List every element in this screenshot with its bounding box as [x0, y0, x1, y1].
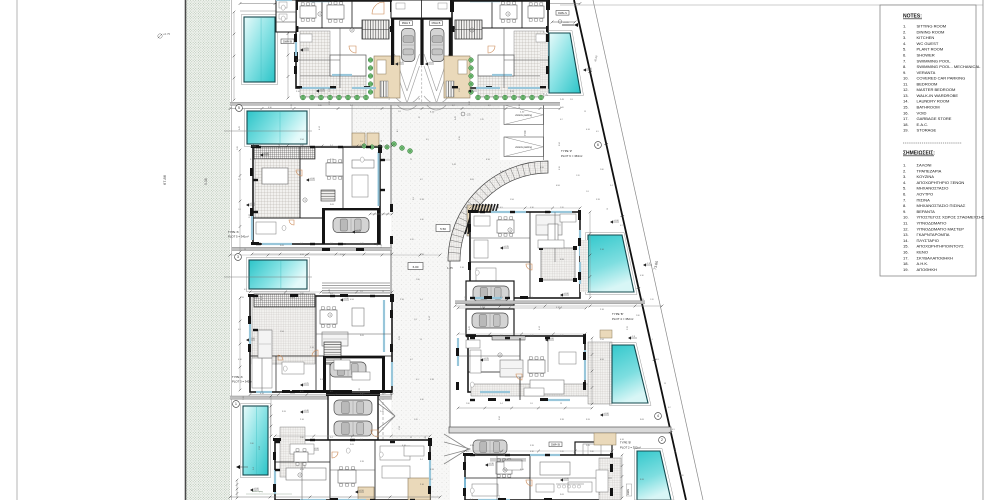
svg-text:3.4: 3.4 — [610, 185, 613, 187]
svg-text:0.9: 0.9 — [500, 451, 503, 453]
svg-text:4.2: 4.2 — [397, 129, 399, 132]
svg-text:1.20: 1.20 — [680, 475, 684, 477]
svg-text:0.30: 0.30 — [530, 207, 534, 209]
svg-text:0.30: 0.30 — [559, 166, 561, 170]
svg-text:DWH B: DWH B — [283, 39, 292, 43]
svg-text:15: 15 — [560, 403, 562, 405]
svg-text:1.20: 1.20 — [414, 419, 418, 421]
svg-text:3.: 3. — [903, 174, 906, 179]
svg-text:0.30: 0.30 — [640, 275, 644, 277]
svg-text:15.: 15. — [903, 105, 909, 110]
svg-text:TYPE 'A': TYPE 'A' — [232, 375, 243, 379]
svg-text:4.2: 4.2 — [466, 207, 469, 209]
svg-text:9.: 9. — [903, 70, 906, 75]
svg-text:ΑΠΟΧΩΡΗΤΗΡΙΟ/ΝΤΟΥΣ: ΑΠΟΧΩΡΗΤΗΡΙΟ/ΝΤΟΥΣ — [917, 244, 965, 249]
svg-text:PLOT 4 = 352m²: PLOT 4 = 352m² — [612, 317, 633, 321]
svg-text:15: 15 — [244, 249, 246, 251]
svg-text:3.4: 3.4 — [253, 467, 255, 470]
svg-text:+0.40: +0.40 — [263, 153, 269, 155]
svg-text:+0.05: +0.05 — [563, 22, 569, 24]
svg-text:ΠΛΥΣΤΑΡΙΟ: ΠΛΥΣΤΑΡΙΟ — [917, 238, 939, 243]
svg-text:2.80: 2.80 — [300, 437, 304, 439]
svg-text:TYPE 'A': TYPE 'A' — [228, 230, 239, 234]
svg-text:12.: 12. — [903, 226, 909, 231]
svg-text:0.30: 0.30 — [360, 243, 364, 245]
svg-text:0.9: 0.9 — [488, 105, 491, 107]
svg-text:WALK-IN WARDROBE: WALK-IN WARDROBE — [917, 93, 959, 98]
svg-text:2.80: 2.80 — [318, 105, 322, 107]
svg-text:ΣΚΥΒΑΛΑΠΟΘΗΚΗ: ΣΚΥΒΑΛΑΠΟΘΗΚΗ — [917, 255, 954, 260]
svg-text:TYPE 'B': TYPE 'B' — [620, 441, 631, 445]
svg-text:0.9: 0.9 — [629, 247, 631, 250]
svg-text:0.9: 0.9 — [330, 243, 333, 245]
svg-text:GARBAGE STORE: GARBAGE STORE — [917, 116, 952, 121]
svg-text:ΒΕΡΑΝΤΑ: ΒΕΡΑΝΤΑ — [917, 209, 936, 214]
svg-text:18.: 18. — [903, 261, 909, 266]
svg-text:1.20: 1.20 — [576, 175, 580, 177]
svg-text:KITCHEN: KITCHEN — [917, 35, 935, 40]
svg-text:0.30: 0.30 — [519, 104, 521, 108]
svg-text:4.2: 4.2 — [244, 289, 247, 291]
svg-text:VERANTA: VERANTA — [917, 70, 936, 75]
svg-text:4.2: 4.2 — [560, 119, 563, 121]
svg-text:13.: 13. — [903, 93, 909, 98]
svg-text:6.: 6. — [903, 192, 906, 197]
svg-text:8.: 8. — [903, 64, 906, 69]
svg-text:ΜΗΧΑΝΟΣΤΑΣΙΟ: ΜΗΧΑΝΟΣΤΑΣΙΟ — [917, 186, 949, 191]
svg-text:0.9: 0.9 — [416, 379, 419, 381]
svg-text:4.2: 4.2 — [668, 407, 671, 409]
svg-text:ΛΟΥΤΡΟ: ΛΟΥΤΡΟ — [917, 192, 934, 197]
svg-text:15: 15 — [419, 98, 421, 100]
svg-text:SWIMMING POOL - MECHANICAL: SWIMMING POOL - MECHANICAL — [917, 64, 982, 69]
svg-text:BATHROOM: BATHROOM — [917, 105, 941, 110]
svg-text:visitors parking: visitors parking — [515, 146, 532, 149]
svg-text:+0.45: +0.45 — [398, 62, 404, 64]
svg-text:16.: 16. — [903, 110, 909, 115]
svg-text:4.2: 4.2 — [466, 337, 469, 339]
svg-text:15: 15 — [410, 437, 412, 439]
svg-text:3.4: 3.4 — [420, 459, 423, 461]
svg-text:2.80: 2.80 — [237, 146, 239, 150]
svg-text:1.20: 1.20 — [381, 244, 383, 248]
svg-text:0.9: 0.9 — [413, 197, 415, 200]
svg-text:13.: 13. — [903, 232, 909, 237]
svg-text:5.50: 5.50 — [440, 227, 446, 231]
svg-text:15: 15 — [410, 159, 412, 161]
svg-text:+0.00: +0.00 — [249, 203, 255, 205]
svg-text:0.30: 0.30 — [268, 107, 272, 109]
svg-text:2.80: 2.80 — [300, 293, 304, 295]
svg-text:10.: 10. — [903, 215, 909, 220]
svg-text:10.: 10. — [903, 76, 909, 81]
svg-text:E.A.C.: E.A.C. — [917, 122, 929, 127]
svg-text:7.: 7. — [903, 197, 906, 202]
svg-text:4.: 4. — [903, 180, 906, 185]
svg-text:8.: 8. — [903, 203, 906, 208]
svg-text:0.30: 0.30 — [675, 448, 677, 452]
svg-text:DWH B: DWH B — [551, 442, 560, 446]
svg-text:ΥΠΝΟΔΩΜΑΤΙΟ: ΥΠΝΟΔΩΜΑΤΙΟ — [917, 221, 947, 226]
svg-text:DWH: DWH — [626, 489, 630, 495]
svg-text:1.8: 1.8 — [360, 141, 363, 143]
svg-text:ΠΙΣΙΝΑ: ΠΙΣΙΝΑ — [917, 197, 931, 202]
svg-text:3.4: 3.4 — [330, 437, 333, 439]
svg-text:ΚΕΝΟ: ΚΕΝΟ — [917, 250, 928, 255]
svg-text:+0.35: +0.35 — [503, 246, 509, 248]
svg-text:+0.00: +0.00 — [253, 488, 259, 490]
svg-text:+0.00: +0.00 — [343, 298, 349, 300]
svg-text:2.80: 2.80 — [250, 443, 254, 445]
svg-text:PLOT 2 = 352m²: PLOT 2 = 352m² — [620, 445, 641, 449]
svg-text:5: 5 — [238, 106, 240, 110]
svg-text:4: 4 — [657, 414, 659, 418]
svg-text:0.30: 0.30 — [459, 136, 461, 140]
svg-text:2.80: 2.80 — [636, 315, 640, 317]
svg-text:+0.10: +0.10 — [358, 490, 364, 492]
svg-text:ΤΡΑΠΕΖΑΡΙΑ: ΤΡΑΠΕΖΑΡΙΑ — [917, 168, 942, 173]
svg-text:0.30: 0.30 — [530, 451, 534, 453]
svg-text:14.: 14. — [903, 238, 909, 243]
svg-text:PLOT 5 = 341m²: PLOT 5 = 341m² — [228, 235, 249, 239]
svg-text:+0.00: +0.00 — [319, 89, 325, 91]
svg-text:+0.00: +0.00 — [313, 448, 319, 450]
svg-text:SITTING ROOM: SITTING ROOM — [917, 24, 947, 29]
svg-text:SWIMMING POOL: SWIMMING POOL — [917, 58, 952, 63]
svg-text:15: 15 — [381, 140, 383, 142]
svg-text:BEDROOM: BEDROOM — [917, 81, 939, 86]
svg-text:+0.00: +0.00 — [613, 220, 619, 222]
svg-text:4.: 4. — [903, 41, 906, 46]
svg-text:2.80: 2.80 — [425, 436, 427, 440]
svg-text:ΜΗΧΑΝΟΣΤΑΣΙΟ ΠΙΣΙΝΑΣ: ΜΗΧΑΝΟΣΤΑΣΙΟ ΠΙΣΙΝΑΣ — [917, 203, 966, 208]
svg-text:15: 15 — [607, 208, 609, 210]
svg-text:STORAGE: STORAGE — [917, 128, 937, 133]
svg-text:15: 15 — [382, 291, 384, 293]
svg-text:1.8: 1.8 — [398, 111, 401, 113]
svg-text:+0.25: +0.25 — [355, 230, 361, 232]
svg-text:15.: 15. — [903, 244, 909, 249]
svg-text:LAUNDRY ROOM: LAUNDRY ROOM — [917, 99, 951, 104]
svg-text:14.: 14. — [903, 99, 909, 104]
svg-text:1.20: 1.20 — [560, 207, 564, 209]
svg-text:1.20: 1.20 — [650, 299, 654, 301]
svg-text:17.: 17. — [903, 255, 909, 260]
svg-text:3.4: 3.4 — [238, 179, 241, 181]
svg-text:0.30: 0.30 — [360, 393, 364, 395]
svg-text:TYPE 'Z': TYPE 'Z' — [561, 149, 573, 153]
svg-text:2.80: 2.80 — [465, 296, 467, 300]
svg-text:11.: 11. — [903, 81, 908, 86]
svg-text:1.20: 1.20 — [560, 107, 564, 109]
svg-text:0.30: 0.30 — [420, 399, 424, 401]
svg-text:2.80: 2.80 — [466, 403, 470, 405]
svg-text:7.: 7. — [903, 58, 906, 63]
svg-text:16.: 16. — [903, 250, 909, 255]
svg-text:4.2: 4.2 — [300, 243, 303, 245]
svg-text:0.9: 0.9 — [330, 391, 333, 393]
svg-text:+0.00: +0.00 — [603, 413, 609, 415]
svg-text:1.25: 1.25 — [447, 266, 453, 270]
svg-text:11.: 11. — [903, 221, 908, 226]
svg-text:0.30: 0.30 — [530, 335, 534, 337]
svg-text:visitors parking: visitors parking — [515, 114, 532, 117]
svg-text:+0.00: +0.00 — [586, 68, 592, 70]
svg-text:+0.35: +0.35 — [483, 358, 489, 360]
svg-text:4.2: 4.2 — [410, 359, 413, 361]
svg-text:1.20: 1.20 — [480, 119, 484, 121]
svg-text:3.4: 3.4 — [500, 297, 503, 299]
svg-text:6.00: 6.00 — [413, 265, 419, 269]
svg-text:ΣΑΛΟΝΙ: ΣΑΛΟΝΙ — [917, 163, 932, 168]
svg-text:+0.75: +0.75 — [163, 32, 171, 36]
svg-text:1.8: 1.8 — [530, 403, 533, 405]
svg-text:+0.15: +0.15 — [471, 89, 477, 91]
svg-text:Α.Η.Κ.: Α.Η.Κ. — [917, 261, 929, 266]
svg-text:ΥΠΟΣΤΕΓΟΣ ΧΩΡΟΣ ΣΤΑΘΜΕΥΣΗΣ: ΥΠΟΣΤΕΓΟΣ ΧΩΡΟΣ ΣΤΑΘΜΕΥΣΗΣ — [917, 215, 985, 220]
svg-text:1.8: 1.8 — [430, 479, 433, 481]
svg-text:9.: 9. — [903, 209, 906, 214]
svg-text:1.8: 1.8 — [414, 319, 417, 321]
svg-text:0.9: 0.9 — [500, 207, 503, 209]
svg-text:ΥΠΝΟΔΩΜΑΤΙΟ ΜΑΣΤΕΡ: ΥΠΝΟΔΩΜΑΤΙΟ ΜΑΣΤΕΡ — [917, 226, 965, 231]
svg-text:2.80: 2.80 — [600, 169, 604, 171]
svg-text:4.2: 4.2 — [620, 225, 623, 227]
svg-text:19.: 19. — [903, 267, 909, 272]
svg-text:PLOT 6 = 363m²: PLOT 6 = 363m² — [561, 154, 582, 158]
svg-text:5.38: 5.38 — [204, 178, 208, 185]
svg-text:0.9: 0.9 — [672, 429, 675, 431]
svg-text:WC GUEST: WC GUEST — [917, 41, 939, 46]
svg-text:VOID: VOID — [917, 110, 927, 115]
svg-text:2.80: 2.80 — [300, 145, 304, 147]
svg-text:1.8: 1.8 — [530, 297, 533, 299]
svg-text:0.9: 0.9 — [238, 329, 241, 331]
svg-text:0.9: 0.9 — [500, 335, 503, 337]
svg-text:15: 15 — [664, 383, 666, 385]
svg-text:+0.30: +0.30 — [488, 463, 494, 465]
svg-text:7.00: 7.00 — [523, 130, 527, 136]
svg-text:1.8: 1.8 — [656, 359, 659, 361]
svg-text:4.2: 4.2 — [452, 105, 455, 107]
svg-text:15: 15 — [420, 339, 422, 341]
svg-text:ΑΠΟΘΗΚΗ: ΑΠΟΘΗΚΗ — [917, 267, 938, 272]
svg-text:PLANT ROOM: PLANT ROOM — [917, 47, 944, 52]
svg-text:2.: 2. — [903, 29, 906, 34]
svg-text:+0.15: +0.15 — [303, 48, 309, 50]
svg-text:PLOT 3 = 345m²: PLOT 3 = 345m² — [232, 380, 253, 384]
svg-text:3.4: 3.4 — [330, 145, 333, 147]
svg-text:1.: 1. — [903, 24, 906, 29]
svg-text:18.: 18. — [903, 122, 909, 127]
svg-text:1.20: 1.20 — [560, 335, 564, 337]
svg-text:5.: 5. — [903, 47, 906, 52]
svg-text:1.8: 1.8 — [238, 209, 241, 211]
svg-text:1.8: 1.8 — [586, 191, 589, 193]
svg-text:4.2: 4.2 — [466, 451, 469, 453]
svg-text:landscaping: landscaping — [252, 491, 263, 493]
svg-text:5.: 5. — [903, 186, 906, 191]
svg-text:COVERED CAR PARKING: COVERED CAR PARKING — [917, 76, 966, 81]
svg-text:17.: 17. — [903, 116, 909, 121]
svg-text:6: 6 — [597, 143, 599, 147]
svg-text:19.: 19. — [903, 128, 909, 133]
svg-text:4.2: 4.2 — [420, 179, 423, 181]
svg-text:ΓΚΑΡΝΤΑΡΟΜΠΑ: ΓΚΑΡΝΤΑΡΟΜΠΑ — [917, 232, 950, 237]
svg-text:3.4: 3.4 — [500, 403, 503, 405]
svg-text:ΚΟΥΖΙΝΑ: ΚΟΥΖΙΝΑ — [917, 174, 935, 179]
svg-text:+0.40: +0.40 — [303, 410, 309, 412]
svg-text:12.: 12. — [903, 87, 909, 92]
svg-text:3: 3 — [237, 255, 239, 259]
svg-text:2.: 2. — [903, 168, 906, 173]
svg-text:1.: 1. — [903, 163, 906, 168]
svg-text:1.8: 1.8 — [389, 97, 391, 100]
svg-text:67.86: 67.86 — [162, 174, 167, 185]
svg-text:4.2: 4.2 — [300, 391, 303, 393]
svg-text:1.8: 1.8 — [570, 99, 573, 101]
svg-text:3.4: 3.4 — [420, 299, 423, 301]
svg-text:3.4: 3.4 — [350, 105, 353, 107]
svg-text:1.20: 1.20 — [382, 393, 386, 395]
svg-text:3.: 3. — [903, 35, 906, 40]
svg-text:0.9: 0.9 — [426, 139, 429, 141]
svg-text:DWH B: DWH B — [432, 21, 441, 25]
svg-text:3.4: 3.4 — [545, 95, 548, 97]
svg-text:15: 15 — [560, 297, 562, 299]
svg-text:15: 15 — [584, 111, 586, 113]
svg-text:3.4: 3.4 — [330, 293, 333, 295]
svg-text:0.9: 0.9 — [596, 131, 599, 133]
svg-text:+0.00: +0.00 — [309, 178, 315, 180]
svg-text:DWH-S: DWH-S — [558, 11, 567, 15]
svg-text:+0.25: +0.25 — [303, 383, 309, 385]
svg-text:1.8: 1.8 — [360, 291, 363, 293]
svg-text:1.8: 1.8 — [499, 495, 501, 498]
svg-text:0.30: 0.30 — [420, 219, 424, 221]
svg-text:15: 15 — [418, 117, 420, 119]
svg-text:1.20: 1.20 — [410, 239, 414, 241]
svg-text:3.4: 3.4 — [650, 339, 653, 341]
svg-text:6.: 6. — [903, 53, 906, 58]
svg-text:1.20: 1.20 — [560, 451, 564, 453]
svg-text:1.20: 1.20 — [243, 396, 245, 400]
svg-text:0.30: 0.30 — [238, 359, 242, 361]
svg-text:SHOWER: SHOWER — [917, 53, 935, 58]
svg-text:MASTER BEDROOM: MASTER BEDROOM — [917, 87, 957, 92]
svg-text:+0.00: +0.00 — [563, 293, 569, 295]
svg-text:2.80: 2.80 — [590, 451, 594, 453]
svg-text:DINING ROOM: DINING ROOM — [917, 29, 946, 34]
svg-text:TYPE 'B': TYPE 'B' — [612, 312, 624, 316]
svg-text:2.80: 2.80 — [416, 279, 420, 281]
svg-text:ΑΠΟΧΩΡΗΤΗΡΙΟ ΞΕΝΩΝ: ΑΠΟΧΩΡΗΤΗΡΙΟ ΞΕΝΩΝ — [917, 180, 965, 185]
svg-text:1.8: 1.8 — [360, 439, 363, 441]
svg-text:2: 2 — [661, 438, 663, 442]
svg-text:DWH 5: DWH 5 — [402, 21, 411, 25]
svg-text:2.80: 2.80 — [519, 96, 521, 100]
svg-text:1.20: 1.20 — [291, 104, 293, 108]
svg-text:+0.45: +0.45 — [428, 62, 434, 64]
svg-text:1: 1 — [235, 402, 237, 406]
